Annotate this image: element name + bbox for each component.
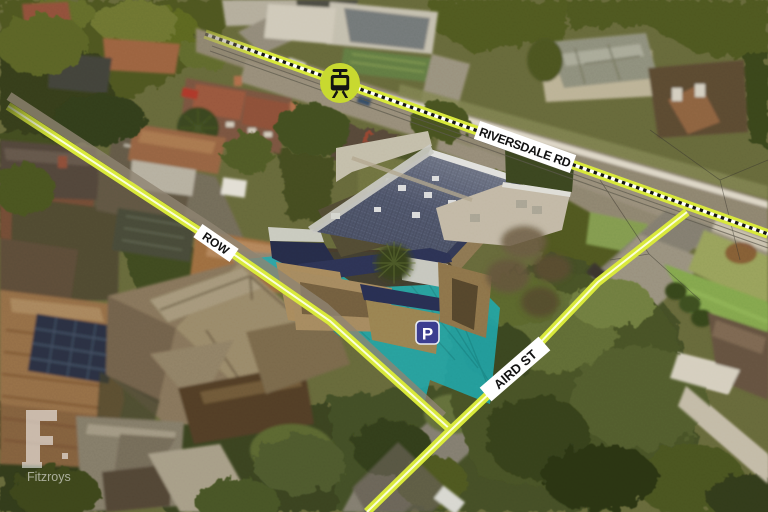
svg-text:P: P <box>422 325 433 344</box>
svg-text:Fitzroys: Fitzroys <box>27 470 71 484</box>
